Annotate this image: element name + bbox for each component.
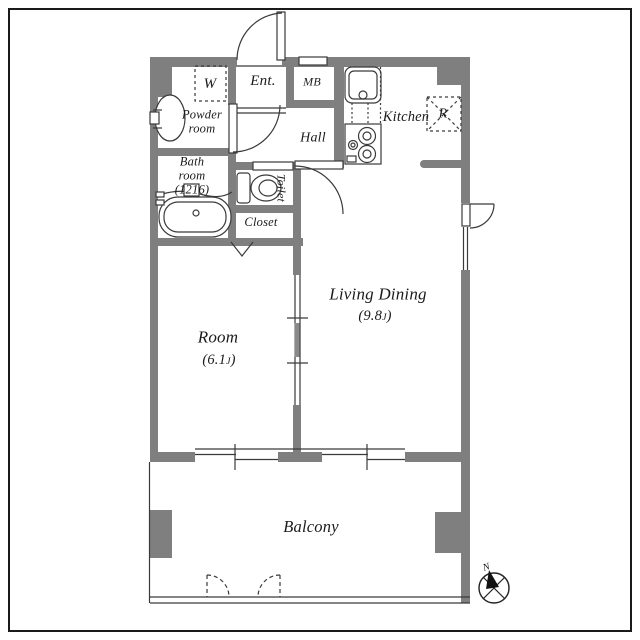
right-casement-window xyxy=(462,204,494,228)
powder-room-door xyxy=(229,104,280,153)
kitchen-sink xyxy=(345,67,381,103)
compass-north-label: N xyxy=(481,561,493,574)
living-size-pre: (9.8 xyxy=(358,308,382,324)
refrigerator-label: R xyxy=(439,106,448,121)
room-size-label: (6.1J) xyxy=(202,353,235,369)
powder-room-label: Powder room xyxy=(182,108,222,136)
balcony-partition-doors xyxy=(207,575,280,597)
right-window xyxy=(464,227,468,270)
living-name-label: Living Dining xyxy=(329,286,427,305)
meter-box-hatch xyxy=(299,57,327,65)
powder-sink xyxy=(150,95,185,141)
balcony-window-room xyxy=(195,444,405,470)
toilet-door xyxy=(253,162,293,170)
balcony-window-living xyxy=(322,444,405,470)
kitchen-label: Kitchen xyxy=(383,110,430,126)
living-size-label: (9.8J) xyxy=(358,309,391,325)
closet-arrow xyxy=(231,242,253,256)
compass: N xyxy=(479,561,509,603)
room-size-pre: (6.1 xyxy=(202,352,226,368)
room-name-label: Room xyxy=(198,329,238,348)
balcony-label: Balcony xyxy=(283,518,338,536)
entrance-label: Ent. xyxy=(250,73,275,90)
hall-label: Hall xyxy=(300,130,326,145)
powder-line2: room xyxy=(182,122,222,136)
bath-line2: room xyxy=(175,169,210,183)
meter-box-label: MB xyxy=(303,75,321,88)
hall-living-door xyxy=(295,161,343,214)
living-size-post: ) xyxy=(387,308,392,324)
bath-room-label: Bath room (1216) xyxy=(175,155,210,196)
floor-plan: N Ent. MB W Hall Kitchen R Powder room B… xyxy=(0,0,640,640)
washer-label: W xyxy=(204,76,217,93)
stove xyxy=(345,124,381,164)
room-size-post: ) xyxy=(231,352,236,368)
room-living-partition xyxy=(287,275,308,405)
powder-line1: Powder xyxy=(182,108,222,122)
closet-label: Closet xyxy=(244,216,277,230)
entrance-step xyxy=(233,108,286,113)
toilet-label: Toilet xyxy=(274,174,287,202)
fixtures-overlay: N xyxy=(0,0,640,640)
bath-line1: Bath xyxy=(175,155,210,169)
entrance-door xyxy=(237,12,285,66)
bath-line3: (1216) xyxy=(175,183,210,197)
